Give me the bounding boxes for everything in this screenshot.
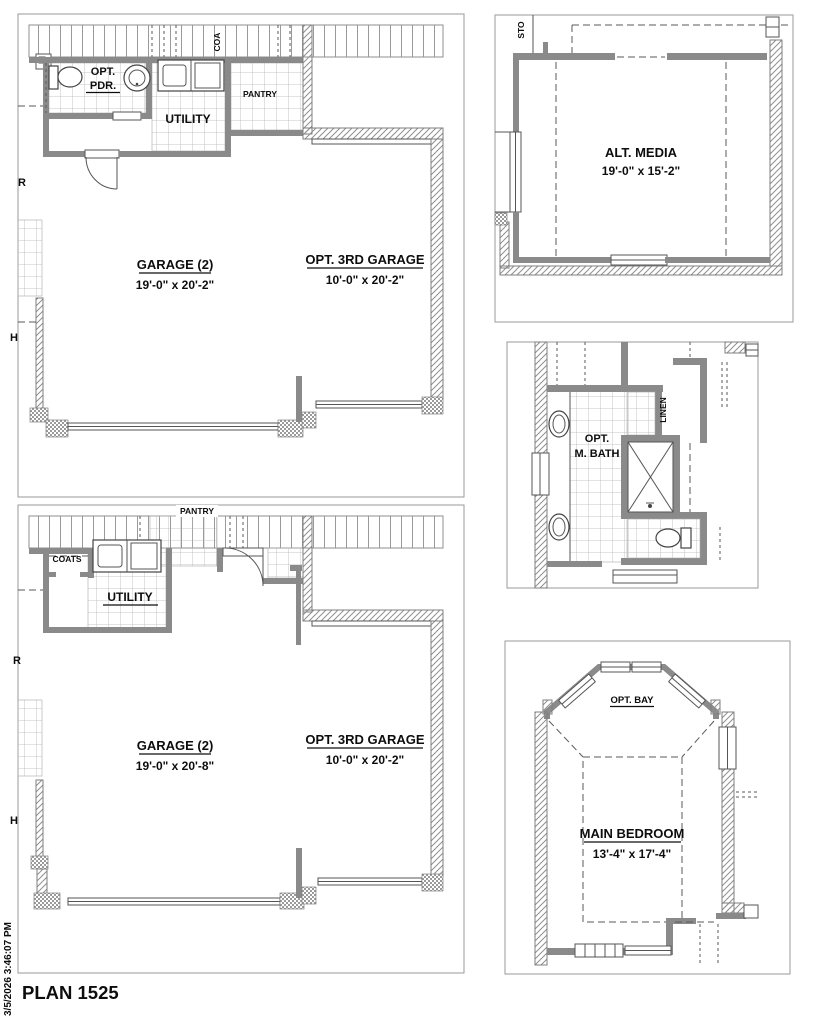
plan-title: PLAN 1525 <box>22 982 119 1003</box>
porch-band <box>29 25 443 57</box>
garage-entry-threshold <box>85 150 119 158</box>
hatched-wall <box>303 610 443 621</box>
hatched-wall <box>535 712 547 965</box>
hatched-wall <box>770 40 782 266</box>
timestamp: 3/5/2026 3:46:07 PM <box>3 922 14 1016</box>
corner-window <box>766 17 779 37</box>
storage-partial-label: STO <box>516 21 526 39</box>
wall-segment <box>716 913 746 919</box>
floorplan-drawing: OPT. PDR. UTILITY PANTRY COA R H GARAGE … <box>0 0 819 1024</box>
sink-symbol <box>549 514 569 540</box>
edge-label-r: R <box>13 655 21 667</box>
third-garage-label: OPT. 3RD GARAGE <box>305 252 425 267</box>
washer-dryer-symbol <box>93 540 161 572</box>
panel-border <box>505 641 790 974</box>
wall-ledge <box>312 139 431 144</box>
wall-detail <box>744 905 758 918</box>
hatched-wall <box>725 342 745 353</box>
window-seat <box>575 944 623 957</box>
stair-detail <box>18 700 42 776</box>
utility-label: UTILITY <box>107 590 152 604</box>
garage-dims: 19'-0" x 20'-2" <box>136 278 214 292</box>
panel-master-bath: LINEN OPT. M. BATH <box>507 342 758 588</box>
edge-label-h: H <box>10 815 18 827</box>
hatched-wall <box>711 700 720 714</box>
powder-door-threshold <box>113 112 141 120</box>
porch-band <box>29 516 443 548</box>
wall-segment <box>513 212 519 261</box>
wall-pad <box>495 213 507 225</box>
edge-label-h: H <box>10 332 18 344</box>
bench-detail <box>613 570 677 583</box>
wall-segment <box>513 53 615 60</box>
pedestal-sink-symbol <box>124 65 150 91</box>
third-garage-label: OPT. 3RD GARAGE <box>305 732 425 747</box>
linen-floor <box>628 392 655 435</box>
powder-label-line1: OPT. <box>91 66 115 78</box>
coats-label: COATS <box>52 554 81 564</box>
toilet-symbol <box>656 528 691 548</box>
toilet-symbol <box>49 66 82 89</box>
window <box>719 727 736 769</box>
sink-symbol <box>549 411 569 437</box>
third-garage-dims: 10'-0" x 20'-2" <box>326 753 404 767</box>
hatched-wall <box>37 869 47 895</box>
garage-label: GARAGE (2) <box>137 257 214 272</box>
hatched-wall <box>722 903 744 913</box>
hatched-wall <box>431 139 443 399</box>
window <box>510 132 521 212</box>
hatched-wall <box>36 780 43 858</box>
panel-alt-media: STO ALT. MEDIA 19'-0" x 15'-2" <box>495 15 793 322</box>
wall-segment <box>665 257 770 263</box>
linen-label: LINEN <box>658 397 668 423</box>
pantry-label: PANTRY <box>243 89 277 99</box>
wall-segment <box>513 60 519 132</box>
coats-partial-label: COA <box>212 33 222 52</box>
bay-label: OPT. BAY <box>611 695 655 706</box>
hatched-wall <box>500 222 509 268</box>
washer-dryer-symbol <box>158 60 224 91</box>
alt-media-label: ALT. MEDIA <box>605 145 678 160</box>
alt-media-dims: 19'-0" x 15'-2" <box>602 164 680 178</box>
hatched-wall <box>431 621 443 876</box>
bedroom-dims: 13'-4" x 17'-4" <box>593 847 671 861</box>
panel-garage-plan-a: OPT. PDR. UTILITY PANTRY COA R H GARAGE … <box>10 14 464 497</box>
garage-label: GARAGE (2) <box>137 738 214 753</box>
utility-label: UTILITY <box>165 112 210 126</box>
wall-stub <box>543 42 548 55</box>
floorplan-sheet: OPT. PDR. UTILITY PANTRY COA R H GARAGE … <box>0 0 819 1024</box>
bedroom-label: MAIN BEDROOM <box>580 826 685 841</box>
window <box>625 946 671 955</box>
third-garage-dims: 10'-0" x 20'-2" <box>326 273 404 287</box>
bath-floor <box>570 390 627 562</box>
hatched-wall <box>36 298 43 410</box>
panel-garage-plan-b: PANTRY <box>10 505 464 973</box>
garage-dims: 19'-0" x 20'-8" <box>136 759 214 773</box>
wall-pad <box>30 408 48 422</box>
powder-label-line2: PDR. <box>90 80 116 92</box>
hatched-wall <box>303 516 312 612</box>
hatched-wall <box>303 128 443 139</box>
bath-label-line1: OPT. <box>585 433 609 445</box>
window <box>611 255 667 265</box>
corner-window <box>746 344 758 356</box>
pantry-label: PANTRY <box>180 506 214 516</box>
hatched-wall <box>303 25 312 134</box>
wall-pad <box>31 856 48 869</box>
hatched-wall <box>500 266 782 275</box>
window <box>532 453 549 495</box>
wall-ledge <box>312 621 431 626</box>
panel-main-bedroom: OPT. BAY MAIN BEDROOM 13'-4" x 17'-4" <box>505 641 790 974</box>
wall-segment <box>667 53 767 60</box>
edge-label-r: R <box>18 177 26 189</box>
stair-detail <box>18 220 42 296</box>
wall-segment <box>513 257 613 263</box>
bath-label-line2: M. BATH <box>574 448 619 460</box>
